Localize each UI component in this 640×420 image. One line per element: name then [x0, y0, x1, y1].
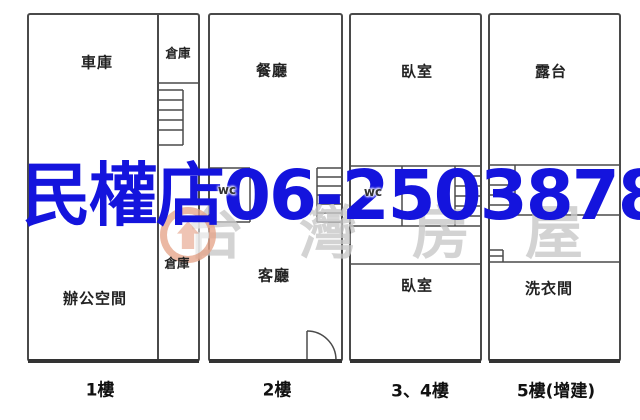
room-label-living: 客廳	[258, 265, 290, 286]
room-label-storage-bottom: 倉庫	[164, 253, 189, 272]
room-label-laundry: 洗衣間	[525, 278, 573, 299]
room-label-office: 辦公空間	[63, 288, 127, 309]
room-label-wc-2f: wc	[218, 183, 236, 197]
floor-label-5f: 5樓(增建)	[517, 377, 595, 402]
room-label-dining: 餐廳	[256, 60, 288, 81]
floor-label-2f: 2樓	[263, 376, 292, 401]
floor-label-1f: 1樓	[86, 376, 115, 401]
room-label-bedroom-lower: 臥室	[401, 275, 433, 296]
room-label-terrace: 露台	[535, 61, 567, 82]
room-label-storage-top: 倉庫	[165, 43, 190, 62]
floor-label-3-4f: 3、4樓	[391, 377, 449, 402]
store-phone-watermark: 民權店06-2503878	[22, 162, 640, 231]
stairs-unit-1f	[158, 90, 183, 145]
floorplan-image: 台灣房屋 民權店06-2503878 車庫 倉庫 倉庫 辦公空間 餐廳 wc 客…	[0, 0, 640, 420]
room-label-wc-3f: wc	[364, 185, 382, 199]
room-label-bedroom-upper: 臥室	[401, 61, 433, 82]
room-label-garage: 車庫	[81, 52, 113, 73]
door-arc-unit-2f	[307, 331, 336, 360]
